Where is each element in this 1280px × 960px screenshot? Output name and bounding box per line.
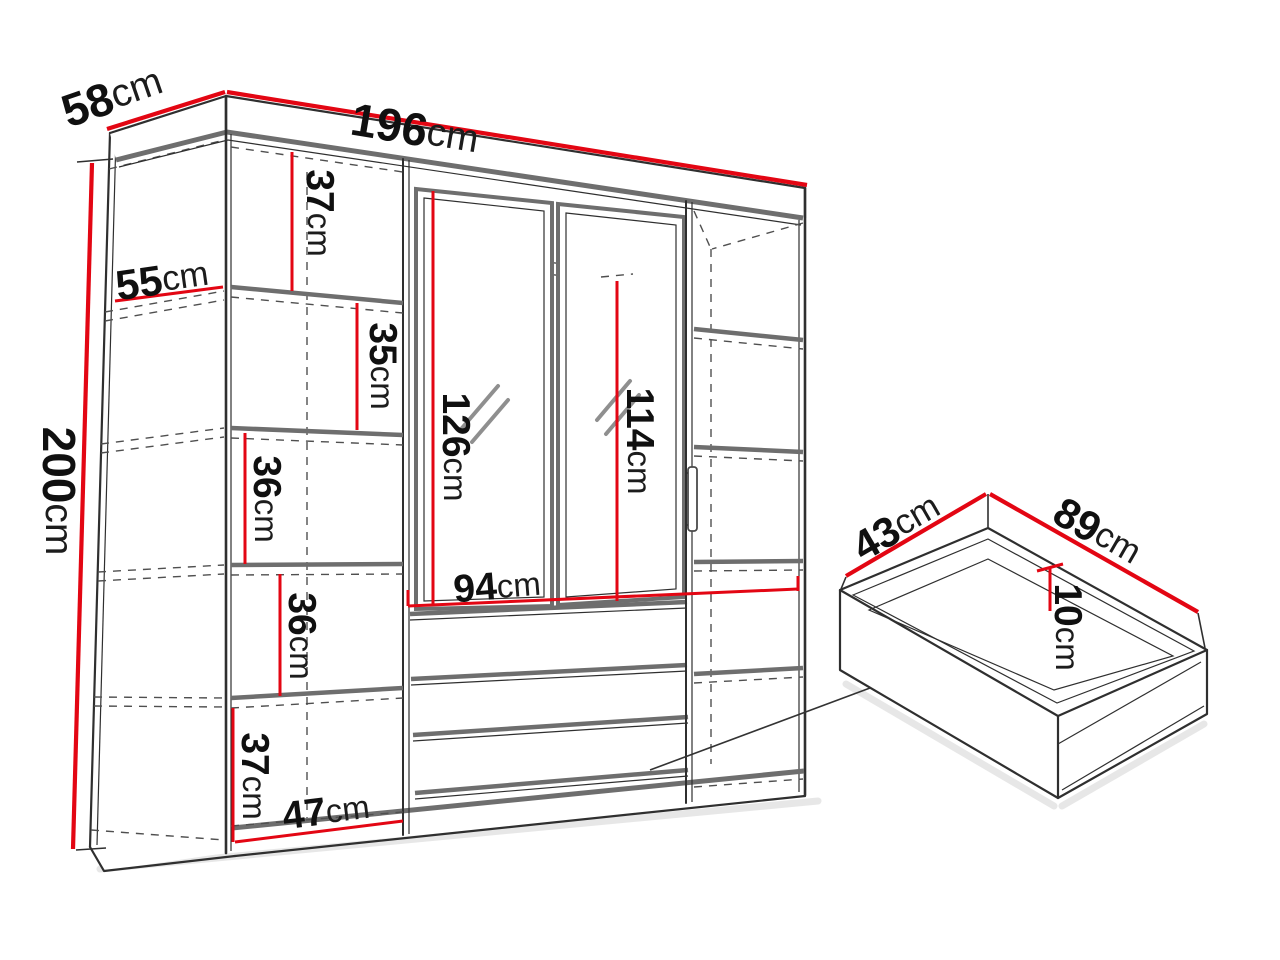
side-panel-face <box>90 96 226 871</box>
drawer-fronts <box>410 602 688 799</box>
label-comp5: 37cm <box>234 732 277 819</box>
right-door-column <box>686 201 803 803</box>
door-handle <box>686 467 697 531</box>
label-drawer-height: 10cm <box>1047 583 1090 670</box>
label-comp2: 35cm <box>362 322 405 409</box>
label-comp3: 36cm <box>246 455 289 542</box>
label-height: 200cm <box>33 427 85 556</box>
side-panel <box>90 96 235 871</box>
label-comp4: 36cm <box>281 592 324 679</box>
drawer-leader-line <box>650 688 870 770</box>
label-mirror-left: 126cm <box>435 392 478 501</box>
label-comp1: 37cm <box>299 169 342 256</box>
label-shelf-width: 47cm <box>280 784 372 837</box>
label-mirror-right: 114cm <box>619 388 662 495</box>
wardrobe-dimension-diagram: 58cm 196cm 200cm 55cm 37cm 35cm 36cm 36c… <box>0 0 1280 960</box>
label-drawer-width: 89cm <box>1046 487 1150 574</box>
